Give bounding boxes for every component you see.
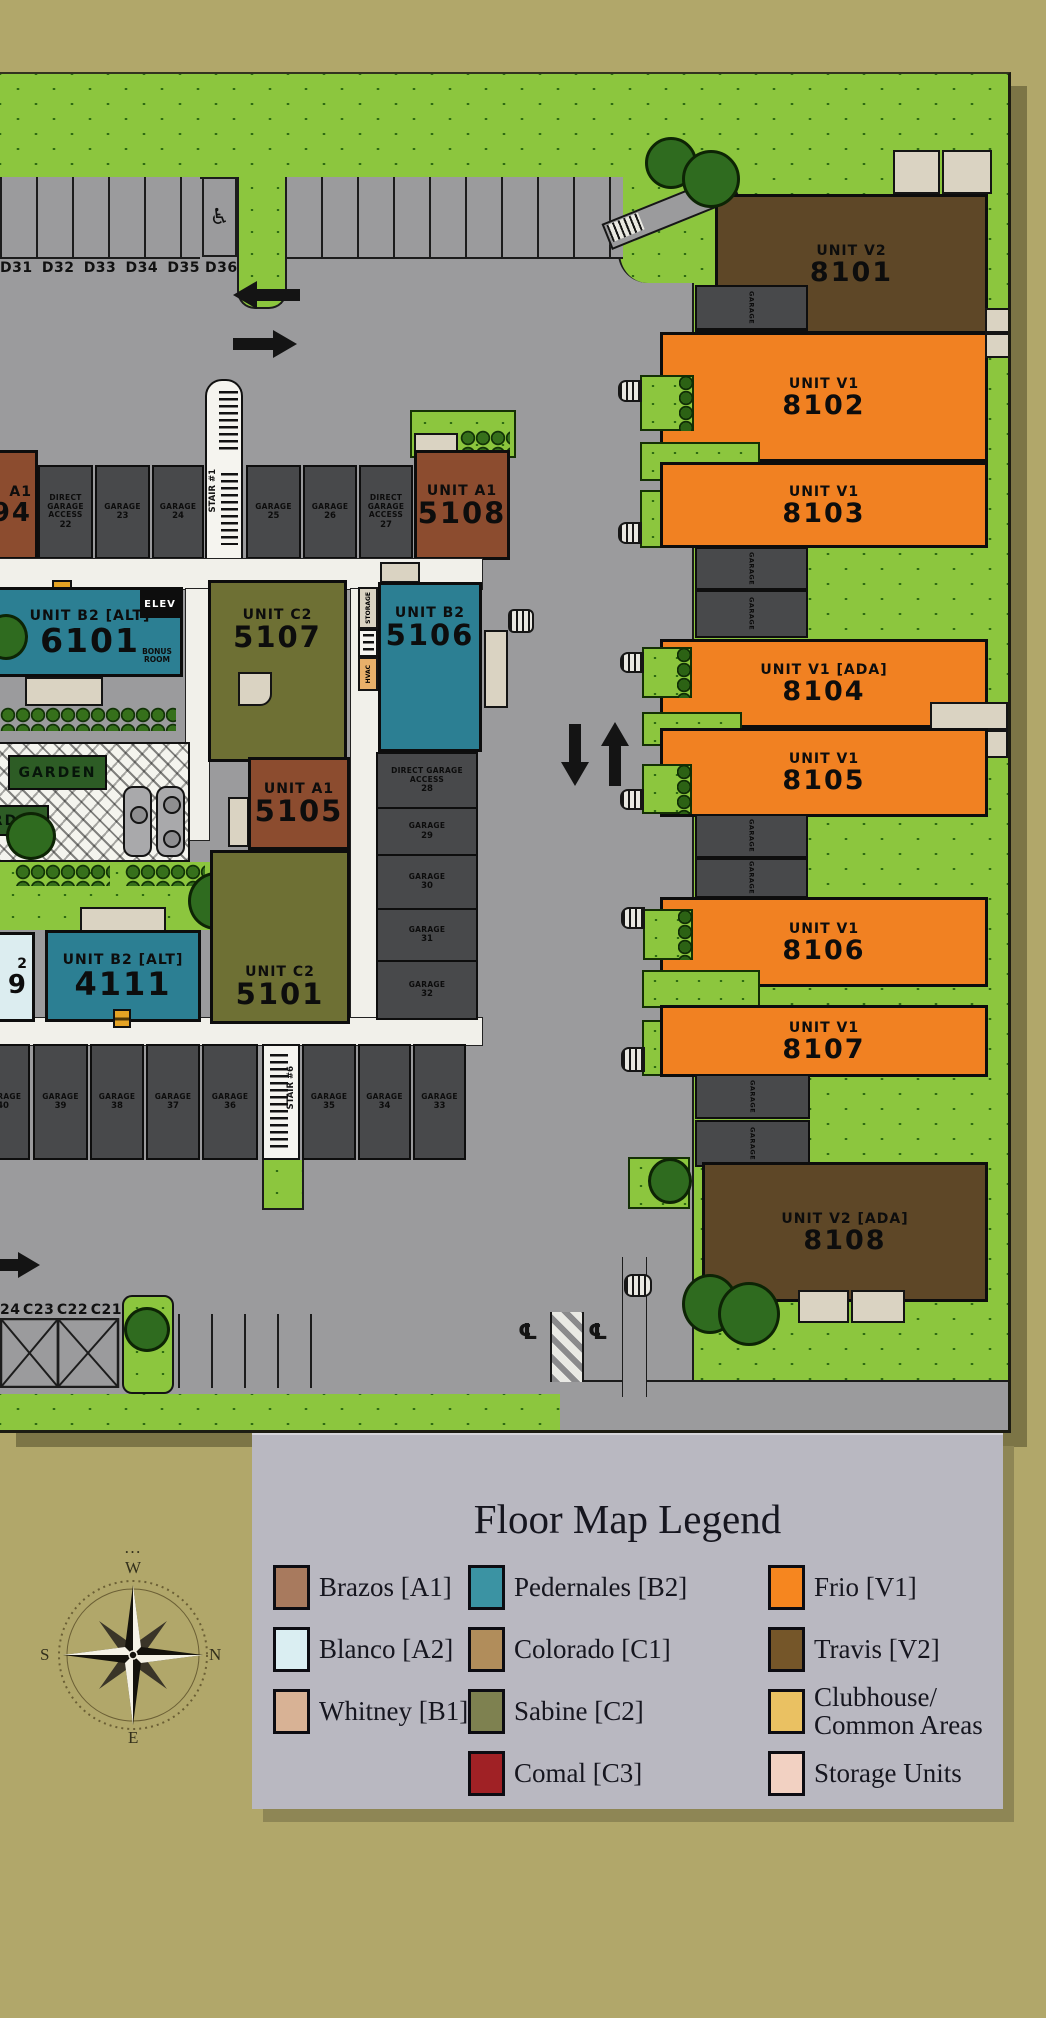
garage-title: GARAGE [99,1093,136,1102]
parking-label: C21 [91,1302,122,1318]
tree [718,1282,780,1346]
hedge-row [0,707,176,731]
hedge-row [15,864,110,886]
hvac-side-5106: HVAC [358,657,378,691]
unit-5108: UNIT A1 5108 [414,450,510,560]
garage-number: 39 [55,1101,67,1111]
landscape-strip [642,647,692,698]
compass-dots: … [124,1538,141,1558]
compass-rose [50,1572,216,1738]
garage-number: 29 [421,831,433,841]
unit-8103: UNIT V1 8103 [660,462,988,548]
compass-label-e: E [128,1728,138,1748]
garage-35: GARAGE 35 [302,1044,356,1160]
hvac-label: HVAC [365,665,372,683]
garage-title: GARAGE [366,1093,403,1102]
garage-title: GARAGE [311,1093,348,1102]
unit-number: 94 [0,500,32,526]
garage-number: 26 [324,511,336,521]
garage-number: 35 [323,1101,335,1111]
storage-box [985,333,1011,358]
garage-29: GARAGE 29 [376,807,478,856]
storage-box [942,150,992,194]
parking-stalls-bottom [178,1314,313,1388]
centerline-symbol: ℄ [518,1320,538,1345]
picnic-area [123,786,185,857]
unit-5101: UNIT C2 5101 [210,850,350,1024]
unit-number: 5108 [418,499,507,528]
legend-item: Colorado [C1] [468,1627,687,1672]
garage-title: GARAGE [421,1093,458,1102]
parking-stalls-top-right [285,177,623,259]
unit-number: 8101 [810,259,893,286]
unit-5105: UNIT A1 5105 [248,757,350,850]
legend-column-1: Brazos [A1] Blanco [A2] Whitney [B1] [273,1565,468,1734]
legend-label: Brazos [A1] [319,1574,452,1602]
garage-access-22: DIRECT GARAGE ACCESS 22 [38,465,93,559]
legend-swatch [468,1689,505,1734]
garage-title: GARAGE [312,503,349,512]
garage-31: GARAGE 31 [376,908,478,962]
patio-6101 [25,677,103,706]
floor-map-page: ♿ D31 D32 D33 D34 D35 D36 STAIR #1 [0,0,1046,2018]
unit-number: 9 [8,972,28,998]
legend-item: Blanco [A2] [273,1627,468,1672]
garage-right-building: GARAGE [695,858,808,898]
legend-swatch [468,1751,505,1796]
picnic-table [156,786,185,857]
garage-number: 25 [268,511,280,521]
stair-1-label: STAIR #1 [208,469,218,513]
garage-title: GARAGE [409,981,446,990]
tree [682,150,740,208]
tree [648,1158,692,1204]
garage-30: GARAGE 30 [376,854,478,910]
parking-label: D33 [84,260,117,276]
stair-6-label: STAIR #6 [286,1066,296,1110]
garage-32: GARAGE 32 [376,960,478,1020]
garage-title: GARAGE [409,873,446,882]
storage-box [380,562,420,583]
garage-title: GARAGE [749,1080,757,1113]
legend-item: Comal [C3] [468,1751,687,1796]
garage-right-building: GARAGE [695,547,808,590]
legend-label: Whitney [B1] [319,1698,468,1726]
garage-38: GARAGE 38 [90,1044,144,1160]
parking-label: D35 [167,260,200,276]
legend-label: Sabine [C2] [514,1698,644,1726]
garage-number: 23 [117,511,129,521]
walk-steps [620,789,644,810]
legend-swatch [273,1627,310,1672]
legend-swatch [468,1627,505,1672]
unit-number: 5101 [236,980,325,1009]
parking-label: D31 [0,260,33,276]
unit-number: 5107 [233,623,322,652]
garage-access-27: DIRECT GARAGE ACCESS 27 [359,465,413,559]
legend-item: Brazos [A1] [273,1565,468,1610]
garage-right-building: GARAGE [695,1120,810,1167]
steps-5106 [508,609,534,633]
parking-label: C23 [23,1302,54,1318]
garage-title: GARAGE [212,1093,249,1102]
grass-below-stair6 [262,1160,304,1210]
legend-title: Floor Map Legend [252,1495,1003,1543]
hedge-row [460,430,510,450]
compass-label-n: N [209,1645,221,1665]
garage-title: GARAGE [0,1093,21,1102]
walk-steps [621,907,645,929]
garage-number: 22 [60,520,72,530]
landscape-strip [643,909,693,960]
legend-swatch [273,1565,310,1610]
garage-34: GARAGE 34 [358,1044,411,1160]
garage-right-building: GARAGE [695,285,808,330]
garage-title: GARAGE [255,503,292,512]
garage-right-building: GARAGE [695,590,808,638]
garage-title: GARAGE [748,819,756,852]
storage-box [798,1290,849,1323]
storage-box [930,702,1008,730]
garage-title: GARAGE [748,597,756,630]
walk-steps [624,1274,652,1297]
accessible-parking-icon: ♿ [210,205,230,230]
garage-number: 37 [167,1101,179,1111]
garage-right-building: GARAGE [695,814,808,858]
arrow-right-icon [0,1252,40,1278]
elevator-box: ELEV [140,590,180,618]
tree [6,812,56,860]
garage-title: GARAGE [160,503,197,512]
garage-number: 30 [421,881,433,891]
garage-title: GARAGE [409,926,446,935]
garage-access-28: DIRECT GARAGE ACCESS 28 [376,752,478,809]
garage-number: 27 [380,520,392,530]
compass-star-icon [50,1572,216,1738]
legend-item: Whitney [B1] [273,1689,468,1734]
garage-number: 28 [421,784,433,794]
legend-item: Travis [V2] [768,1627,983,1672]
legend-label: Travis [V2] [814,1636,940,1664]
patio-5105 [228,797,249,847]
unit-number: 8105 [782,767,865,794]
legend-column-2: Pedernales [B2] Colorado [C1] Sabine [C2… [468,1565,687,1796]
patio-5107 [238,672,272,706]
legend-swatch [768,1627,805,1672]
garage-title: DIRECT GARAGE ACCESS [361,494,411,520]
garage-number: 40 [0,1101,9,1111]
parking-stall-d36: ♿ [202,177,237,257]
legend-label: Pedernales [B2] [514,1574,687,1602]
parking-label: C22 [57,1302,88,1318]
storage-label: STORAGE [365,592,372,624]
walk-steps [621,1047,645,1072]
legend-item: Sabine [C2] [468,1689,687,1734]
arrow-left-icon [233,281,300,309]
garage-26: GARAGE 26 [303,465,357,559]
arrow-up-icon [601,722,629,786]
parking-label-d36: D36 [205,260,238,276]
unit-number: 8104 [782,678,865,705]
storage-box [851,1290,905,1323]
unit-8105: UNIT V1 8105 [660,728,988,817]
storage-side-5106: STORAGE [358,587,378,629]
parking-label: D32 [42,260,75,276]
unit-8108: UNIT V2 [ADA] 8108 [702,1162,988,1302]
walk-steps [618,522,642,544]
legend-swatch [273,1689,310,1734]
garage-24: GARAGE 24 [152,465,204,559]
garage-33: GARAGE 33 [413,1044,466,1160]
unit-partial-a2: 2 9 [0,932,35,1022]
compass-label-w: W [125,1558,141,1578]
garden-label: GARDEN [18,765,96,781]
site-map: ♿ D31 D32 D33 D34 D35 D36 STAIR #1 [0,72,1011,1433]
picnic-table [123,786,152,857]
unit-number: 8107 [782,1036,865,1063]
stairs-side-5106 [358,629,378,657]
landscape-strip [642,764,692,814]
parking-stalls-d-row [0,177,200,259]
legend-swatch [768,1565,805,1610]
unit-number: 5106 [386,621,475,650]
garage-title: GARAGE [409,822,446,831]
floor-map-legend: Floor Map Legend Brazos [A1] Blanco [A2]… [252,1433,1003,1809]
garage-number: 34 [379,1101,391,1111]
unit-number: 4111 [74,968,171,1000]
garage-title: GARAGE [748,291,756,324]
walk-steps [618,380,642,402]
centerline-symbol: ℄ [588,1320,608,1345]
legend-label: Storage Units [814,1760,962,1788]
parking-label: D34 [126,260,159,276]
garage-number: 36 [224,1101,236,1111]
legend-swatch [768,1751,805,1796]
legend-label: Clubhouse/ Common Areas [814,1684,983,1739]
unit-5106: UNIT B2 5106 [378,582,482,752]
garage-title: GARAGE [155,1093,192,1102]
garage-number: 33 [434,1101,446,1111]
unit-8107: UNIT V1 8107 [660,1005,988,1077]
legend-item: Frio [V1] [768,1565,983,1610]
legend-column-3: Frio [V1] Travis [V2] Clubhouse/ Common … [768,1565,983,1796]
garage-37: GARAGE 37 [146,1044,200,1160]
garage-40: GARAGE 40 [0,1044,30,1160]
garage-number: 31 [421,934,433,944]
unit-number: 8106 [782,937,865,964]
unit-number: 8108 [803,1227,886,1254]
storage-box [985,308,1011,333]
landscape-strip [640,375,694,431]
garage-title: DIRECT GARAGE ACCESS [378,767,476,784]
crosswalk [550,1312,584,1382]
stair-6: STAIR #6 [262,1044,300,1160]
garage-39: GARAGE 39 [33,1044,88,1160]
garage-right-building: GARAGE [695,1074,810,1119]
unit-number: 6101 [40,624,140,657]
legend-item: Storage Units [768,1751,983,1796]
legend-item: Pedernales [B2] [468,1565,687,1610]
unit-number: 8102 [782,392,865,419]
garage-title: DIRECT GARAGE ACCESS [40,494,91,520]
garage-number: 38 [111,1101,123,1111]
arrow-down-icon [561,724,589,786]
garden-box: GARDEN [8,755,107,790]
arrow-right-icon [233,330,297,358]
unit-number: 8103 [782,500,865,527]
utility-marker [113,1009,131,1028]
unit-5107: UNIT C2 5107 [208,580,347,762]
garage-25: GARAGE 25 [246,465,301,559]
garage-number: 32 [421,989,433,999]
landscape-strip-wide [642,970,760,1008]
walk-steps [620,652,644,673]
parking-stalls-crossed [0,1318,120,1388]
legend-item: Clubhouse/ Common Areas [768,1689,983,1734]
parking-label: 24 [0,1302,20,1318]
garage-title: GARAGE [104,503,141,512]
stair-1: STAIR #1 [205,379,243,560]
tree [124,1307,170,1352]
parking-labels-c-row: 24 C23 C22 C21 [0,1302,122,1318]
garage-title: GARAGE [749,1127,757,1160]
legend-swatch [468,1565,505,1610]
patio-4111 [80,907,166,932]
garage-number: 24 [172,511,184,521]
bonus-room-label: BONUS ROOM [136,648,178,665]
legend-swatch [768,1689,805,1734]
garage-23: GARAGE 23 [95,465,150,559]
legend-label: Blanco [A2] [319,1636,453,1664]
garage-36: GARAGE 36 [202,1044,258,1160]
legend-label: Comal [C3] [514,1760,642,1788]
unit-number: 5105 [255,797,344,826]
garage-title: GARAGE [42,1093,79,1102]
patio-5106-right [484,630,508,708]
unit-partial-a1: A1 94 [0,450,38,560]
garage-title: GARAGE [748,552,756,585]
storage-box [893,150,940,194]
garage-title: GARAGE [748,861,756,894]
parking-labels-d-row: D31 D32 D33 D34 D35 [0,260,200,276]
legend-label: Colorado [C1] [514,1636,671,1664]
legend-label: Frio [V1] [814,1574,917,1602]
compass-label-s: S [40,1645,49,1665]
